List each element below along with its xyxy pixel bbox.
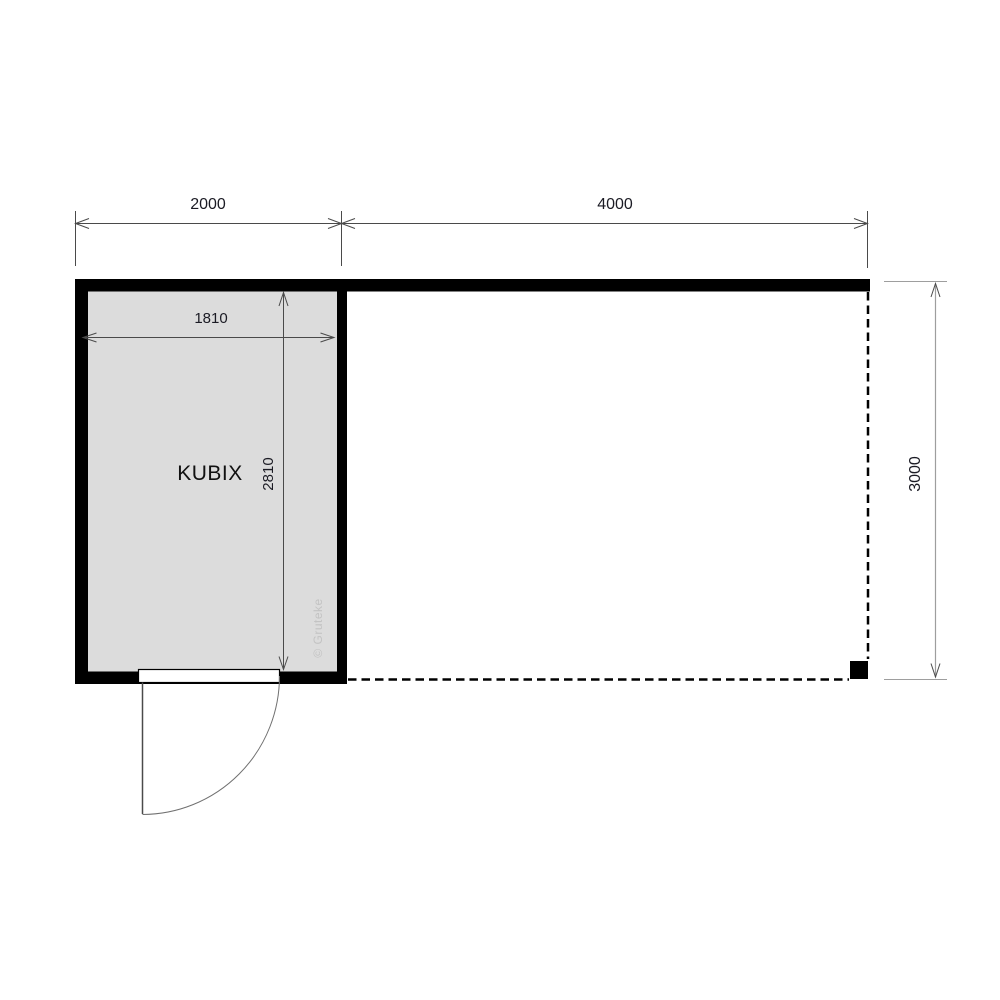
corner-post bbox=[850, 661, 868, 679]
dimension-label-2000: 2000 bbox=[158, 197, 258, 213]
top-wall bbox=[75, 279, 870, 292]
door-swing-arc bbox=[143, 676, 280, 815]
floor-plan-canvas: 2000 4000 1810 2810 3000 KUBIX © Gruteke bbox=[0, 0, 1000, 1000]
dimension-top-chain bbox=[76, 211, 868, 268]
room-name-label: KUBIX bbox=[145, 463, 275, 484]
dimension-label-3000: 3000 bbox=[908, 434, 924, 514]
door-threshold bbox=[139, 670, 280, 683]
dimension-label-4000: 4000 bbox=[565, 197, 665, 213]
dimension-label-1810: 1810 bbox=[161, 311, 261, 326]
floor-plan-drawing bbox=[0, 0, 1000, 1000]
copyright-watermark: © Gruteke bbox=[312, 583, 326, 673]
